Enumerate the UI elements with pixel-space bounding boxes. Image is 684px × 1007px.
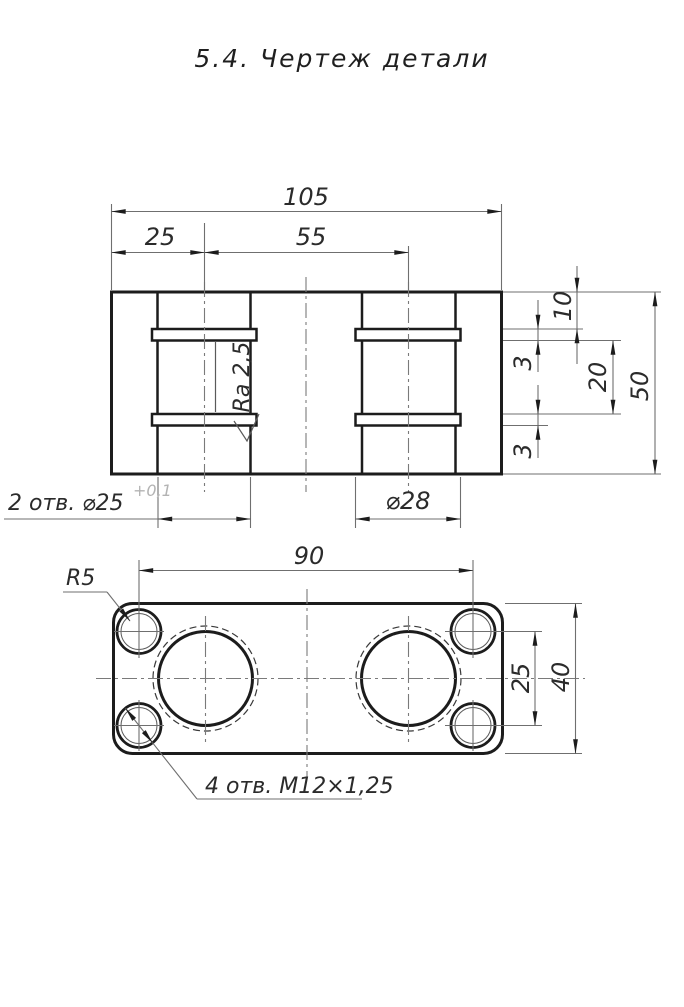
- dim-overall-width-label: 105: [283, 183, 329, 211]
- drawing-sheet: 5.4. Чертеж детали: [0, 0, 684, 1007]
- part-drawing: 105 25 55 10 3 20 50 3 2 отв. ⌀25 +0,1 ⌀…: [0, 0, 684, 1007]
- plan-view: 90 R5 25 40 4 отв. М12×1,25: [63, 542, 585, 799]
- dim-edge-to-hole-label: 25: [145, 223, 176, 251]
- section-view: 105 25 55 10 3 20 50 3 2 отв. ⌀25 +0,1 ⌀…: [4, 183, 661, 528]
- dim-bolt-span-vertical-label: 25: [507, 663, 535, 694]
- bore-holes-note: 2 отв. ⌀25: [8, 491, 123, 516]
- dim-top-to-groove-label: 10: [549, 291, 577, 322]
- roughness-label: Ra 2,5: [230, 342, 255, 413]
- dim-groove-width-bottom-label: 3: [509, 443, 537, 458]
- corner-radius-label: R5: [66, 566, 95, 591]
- dim-groove-width-top-label: 3: [509, 355, 537, 370]
- dim-bolt-span-horizontal-label: 90: [294, 542, 325, 570]
- bore-tolerance-label: +0,1: [133, 481, 172, 500]
- dim-groove-spacing-label: 20: [584, 362, 612, 393]
- dim-height-label: 40: [547, 662, 575, 693]
- dim-hole-spacing-label: 55: [296, 223, 327, 251]
- dim-overall-height-label: 50: [626, 371, 654, 402]
- groove-diameter-label: ⌀28: [386, 487, 431, 515]
- threaded-holes-note: 4 отв. М12×1,25: [205, 774, 394, 799]
